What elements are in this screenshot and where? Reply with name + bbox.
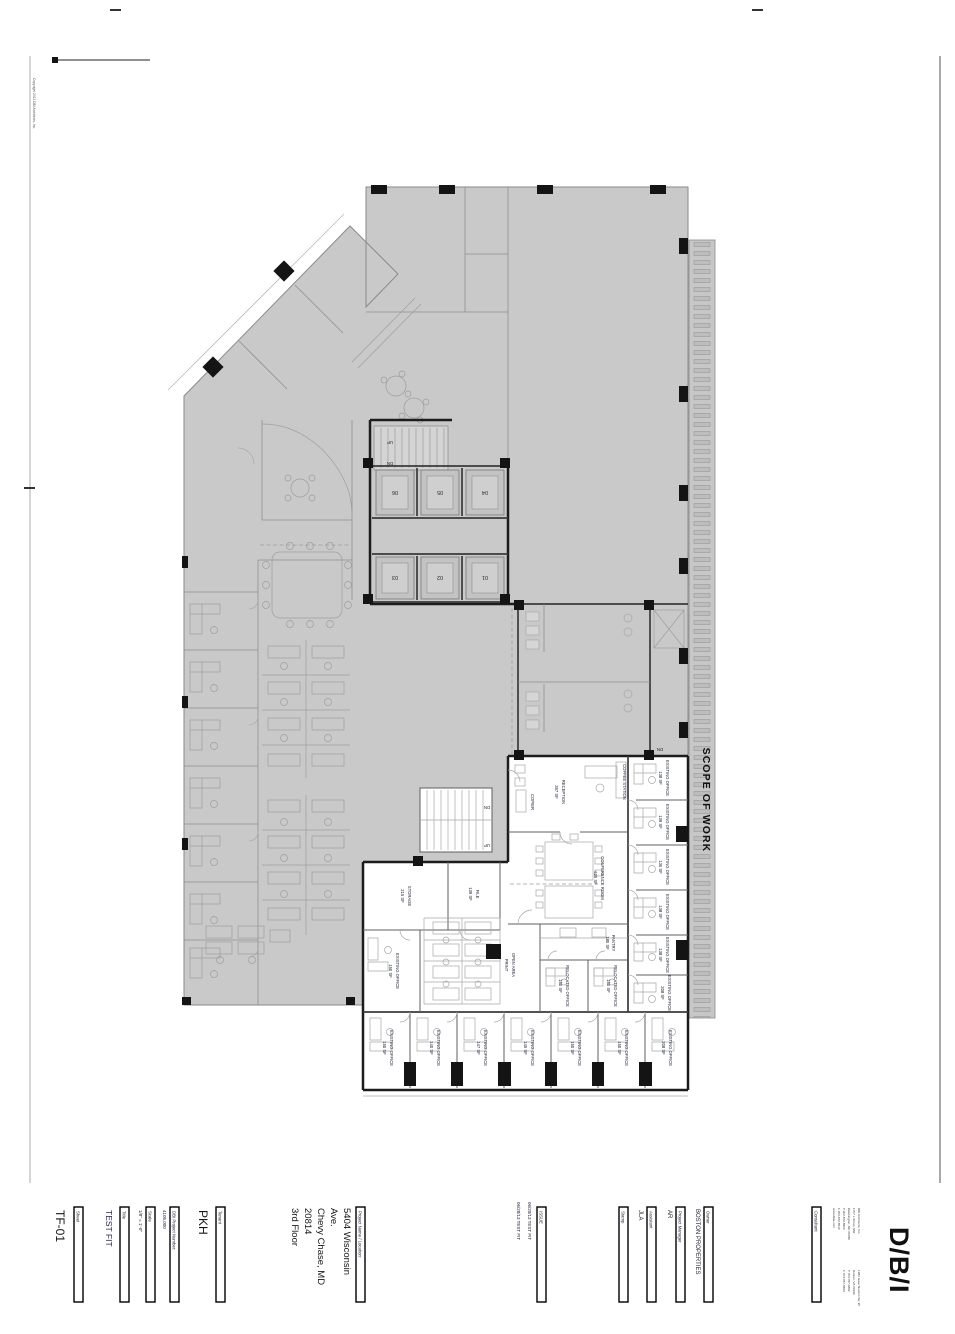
owner-name: BOSTON PROPERTIES: [694, 1209, 700, 1274]
svg-text:140 SF: 140 SF: [429, 1041, 434, 1055]
consultant-address-line: DBI Architects, Inc.: [857, 1208, 861, 1234]
svg-text:EXISTING OFFICE: EXISTING OFFICE: [665, 937, 670, 973]
svg-text:PRINT: PRINT: [504, 959, 509, 972]
svg-text:FILE: FILE: [475, 890, 480, 899]
project-address-line: 3rd Floor: [289, 1208, 300, 1246]
field-project-number: DBI Project Number: 4105.000: [162, 1207, 179, 1302]
svg-text:145 SF: 145 SF: [523, 1041, 528, 1055]
svg-text:ISSUE: ISSUE: [539, 1211, 544, 1224]
svg-text:138 SF: 138 SF: [658, 905, 663, 919]
svg-text:EXISTING OFFICE: EXISTING OFFICE: [624, 1030, 629, 1066]
elevator-number: 04: [482, 489, 488, 495]
field-sheet: Sheet TF-01: [53, 1207, 83, 1302]
stair-b-up-label: UP: [484, 843, 490, 848]
tenant-name: PKH: [196, 1210, 210, 1235]
field-project-manager: Project Manager AR: [666, 1207, 685, 1302]
svg-text:180 SF: 180 SF: [605, 936, 610, 950]
drawing-title: TEST FIT: [104, 1210, 114, 1247]
consultant-address-line: F 202.872.8510: [837, 1208, 841, 1230]
room-label-coffee: COFFEE STATION: [622, 764, 627, 800]
svg-text:147 SF: 147 SF: [476, 1041, 481, 1055]
svg-text:Project Name / Location:: Project Name / Location:: [358, 1211, 363, 1258]
elevator-number: 01: [482, 574, 488, 580]
title-block: Sheet TF-01 Title TEST FIT Scale 1/8" = …: [53, 1202, 914, 1306]
dbi-logo: D/B/I: [884, 1227, 914, 1294]
svg-text:RELOCATED OFFICE: RELOCATED OFFICE: [613, 965, 618, 1007]
issue-entry: 06/20/13 TEST FIT: [527, 1202, 532, 1240]
svg-text:138 SF: 138 SF: [658, 771, 663, 785]
elevator-number: 05: [437, 489, 443, 495]
svg-text:EXISTING OFFICE: EXISTING OFFICE: [389, 1030, 394, 1066]
svg-text:136 SF: 136 SF: [658, 860, 663, 874]
sheet-number: TF-01: [53, 1210, 67, 1242]
service-dn-label: DN: [657, 747, 663, 752]
field-issue: ISSUE 06/20/13 TEST FIT 06/28/13 TEST FI…: [516, 1202, 546, 1302]
svg-text:215 SF: 215 SF: [400, 889, 405, 903]
room-label-pantry: PANTRY180 SF: [605, 935, 616, 952]
project-manager-initials: AR: [666, 1210, 672, 1219]
svg-text:357 SF: 357 SF: [554, 785, 559, 799]
consultant-address-line: F 703.787.0883: [842, 1270, 846, 1292]
consultant-address-line: T 202.872.8500: [842, 1208, 846, 1230]
project-address-line: 20814: [302, 1208, 313, 1234]
svg-text:150 SF: 150 SF: [617, 1041, 622, 1055]
svg-text:139 SF: 139 SF: [658, 815, 663, 829]
svg-text:RECEPTION: RECEPTION: [561, 780, 566, 804]
field-scale: Scale 1/8" = 1'-0": [138, 1207, 155, 1302]
copyright-note: Copyright 2013 DBI Architects, Inc.: [32, 78, 36, 129]
project-address-line: Ave.: [328, 1208, 339, 1227]
stair-b: DN UP: [420, 788, 492, 852]
project-number-value: 4105.000: [162, 1210, 167, 1229]
floor-plan: SCOPE OF WORK: [168, 185, 715, 1096]
field-project-name: Project Name / Location: 5404 Wisconsin …: [289, 1207, 365, 1302]
field-title: Title TEST FIT: [104, 1207, 129, 1302]
svg-text:EXISTING OFFICE: EXISTING OFFICE: [530, 1030, 535, 1066]
elevator-number: 02: [437, 574, 443, 580]
field-consultant: Consultant DBI Architects, Inc. 1707 L S…: [812, 1207, 914, 1306]
consultant-address-line: Washington, DC 20036: [847, 1208, 851, 1240]
scope-band: SCOPE OF WORK: [689, 240, 715, 1018]
field-tenant: Tenant PKH: [196, 1207, 225, 1302]
field-assistant: Assistant JLA: [637, 1207, 656, 1302]
assistant-initials: JLA: [637, 1210, 643, 1220]
svg-text:EXISTING OFFICE: EXISTING OFFICE: [436, 1030, 441, 1066]
svg-text:COPIER: COPIER: [530, 794, 535, 810]
drawing-sheet: Copyright 2013 DBI Architects, Inc. SCOP…: [0, 0, 955, 1334]
svg-text:Scale: Scale: [148, 1211, 153, 1222]
svg-text:EXISTING OFFICE: EXISTING OFFICE: [665, 849, 670, 885]
project-address-line: Chevy Chase, MD: [315, 1208, 326, 1285]
room-label-copier: COPIER: [530, 794, 535, 810]
consultant-address-line: T 703.787.0882: [847, 1270, 851, 1292]
svg-text:Assistant: Assistant: [649, 1211, 654, 1229]
project-address-line: 5404 Wisconsin: [341, 1208, 352, 1275]
svg-text:150 SF: 150 SF: [382, 1041, 387, 1055]
svg-text:CONFERENCE ROOM: CONFERENCE ROOM: [600, 856, 605, 900]
field-owner: Owner BOSTON PROPERTIES: [694, 1207, 713, 1302]
svg-text:EXISTING OFFICE: EXISTING OFFICE: [395, 953, 400, 989]
consultant-address-line: 1984 Isaac Newton Sq. W: [857, 1270, 861, 1306]
elevator-number: 06: [392, 489, 398, 495]
svg-text:Sheet: Sheet: [76, 1211, 81, 1223]
issue-entry: 06/28/13 TEST FIT: [516, 1202, 521, 1240]
svg-text:Title: Title: [122, 1211, 127, 1220]
svg-text:150 SF: 150 SF: [558, 979, 563, 993]
svg-text:OPEN AREA: OPEN AREA: [511, 953, 516, 977]
svg-text:PANTRY: PANTRY: [611, 935, 616, 952]
stair-b-dn-label: DN: [484, 805, 490, 810]
svg-text:625 SF: 625 SF: [593, 871, 598, 885]
svg-text:COFFEE STATION: COFFEE STATION: [622, 764, 627, 800]
stair-a-up-label: UP: [387, 440, 393, 445]
consultant-address-line: Reston, VA 20190: [852, 1270, 856, 1295]
svg-text:EXISTING OFFICE: EXISTING OFFICE: [665, 760, 670, 796]
svg-text:EXISTING OFFICE: EXISTING OFFICE: [665, 894, 670, 930]
svg-text:RELOCATED OFFICE: RELOCATED OFFICE: [565, 965, 570, 1007]
svg-text:EXISTING OFFICE: EXISTING OFFICE: [483, 1030, 488, 1066]
svg-text:150 SF: 150 SF: [606, 979, 611, 993]
svg-text:150 SF: 150 SF: [388, 964, 393, 978]
svg-text:EXISTING OFFICE: EXISTING OFFICE: [665, 804, 670, 840]
svg-text:Stamp: Stamp: [621, 1211, 626, 1224]
scale-value: 1/8" = 1'-0": [138, 1210, 143, 1232]
svg-text:208 SF: 208 SF: [660, 986, 665, 1000]
svg-text:Project Manager: Project Manager: [678, 1211, 683, 1243]
consultant-address-line: www.dbia.com: [832, 1208, 836, 1228]
svg-text:138 SF: 138 SF: [658, 948, 663, 962]
scope-of-work-label: SCOPE OF WORK: [700, 748, 712, 853]
svg-text:DBI Project Number:: DBI Project Number:: [172, 1211, 177, 1250]
svg-text:208 SF: 208 SF: [661, 1041, 666, 1055]
svg-text:EXISTING OFFICE: EXISTING OFFICE: [577, 1030, 582, 1066]
svg-text:139 SF: 139 SF: [468, 887, 473, 901]
svg-text:EXISTING OFFICE: EXISTING OFFICE: [668, 1030, 673, 1066]
svg-text:Owner: Owner: [706, 1211, 711, 1224]
svg-text:Consultant: Consultant: [814, 1211, 819, 1232]
svg-text:Tenant: Tenant: [218, 1211, 223, 1225]
elevator-number: 03: [392, 574, 398, 580]
field-stamp: Stamp: [619, 1207, 628, 1302]
svg-text:150 SF: 150 SF: [570, 1041, 575, 1055]
consultant-address-line: 1707 L Street, NW: [852, 1208, 856, 1233]
svg-text:EXISTING OFFICE: EXISTING OFFICE: [667, 975, 672, 1011]
svg-text:STORAGE: STORAGE: [407, 886, 412, 907]
